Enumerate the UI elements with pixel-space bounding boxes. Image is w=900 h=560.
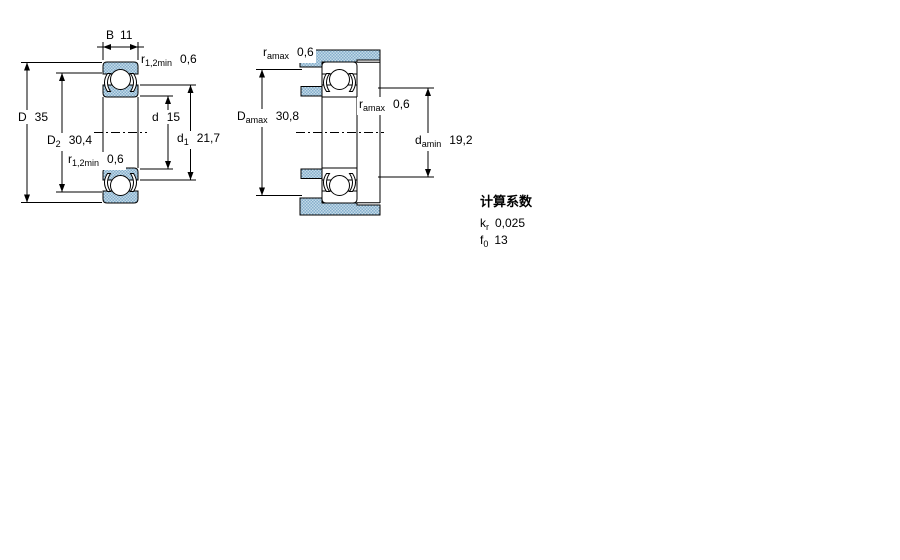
- value: 0,6: [393, 97, 410, 111]
- subscript: amax: [363, 103, 385, 113]
- symbol: d: [415, 133, 422, 147]
- subscript: amax: [267, 51, 289, 61]
- right-mounting-view: [256, 50, 434, 215]
- factor-row-kr: kr0,025: [480, 216, 525, 234]
- symbol: D: [18, 110, 27, 124]
- dim-label-shaft-abutment-diameter: damin19,2: [413, 133, 475, 151]
- value: 15: [167, 110, 180, 124]
- value: 0,6: [297, 45, 314, 59]
- ball-top: [111, 70, 131, 90]
- subscript: 1,2min: [145, 58, 172, 68]
- dimension-housing-abutment-Damax: [256, 70, 302, 196]
- dimension-width-B: [97, 42, 144, 60]
- value: 30,8: [276, 109, 299, 123]
- ball-bottom: [111, 176, 131, 196]
- symbol: d: [177, 131, 184, 145]
- bearing-bottom-section: [322, 168, 357, 203]
- value: 0,6: [180, 52, 197, 66]
- ball-top: [330, 70, 350, 90]
- subscript: amax: [246, 115, 268, 125]
- symbol: D: [237, 109, 246, 123]
- value: 0,025: [495, 216, 525, 230]
- value: 30,4: [69, 133, 92, 147]
- dim-label-shaft-fillet: ramax0,6: [357, 97, 412, 115]
- dim-label-outer-diameter: D35: [16, 110, 50, 124]
- symbol: B: [106, 28, 114, 42]
- subscript: 0: [483, 239, 488, 249]
- value: 35: [35, 110, 48, 124]
- value: 13: [494, 233, 507, 247]
- dim-label-chamfer-top: r1,2min0,6: [141, 52, 197, 70]
- subscript: 2: [56, 139, 61, 149]
- technical-drawing-svg: [0, 0, 900, 560]
- dim-label-chamfer-mid: r1,2min0,6: [66, 152, 126, 170]
- ball-bottom: [330, 176, 350, 196]
- dim-label-housing-fillet-top: ramax0,6: [261, 45, 316, 63]
- value: 11: [120, 28, 132, 42]
- value: 0,6: [107, 152, 124, 166]
- factor-row-f0: f013: [480, 233, 508, 251]
- dim-label-housing-abutment-diameter: Damax30,8: [235, 109, 301, 127]
- subscript: 1: [184, 137, 189, 147]
- bearing-dimension-drawing: B11 r1,2min0,6 D35 D230,4 r1,2min0,6 d15…: [0, 0, 900, 560]
- value: 19,2: [449, 133, 472, 147]
- bearing-top-section: [322, 62, 357, 97]
- shaft-shoulder-bottom: [301, 169, 322, 179]
- calculation-factors-title: 计算系数: [480, 194, 532, 209]
- value: 21,7: [197, 131, 220, 145]
- symbol: d: [152, 110, 159, 124]
- dim-label-bore-diameter: d15: [150, 110, 182, 124]
- dim-label-shoulder-diameter: d121,7: [175, 131, 222, 149]
- symbol: D: [47, 133, 56, 147]
- subscript: r: [486, 222, 489, 232]
- dim-label-width: B11: [106, 28, 132, 42]
- dim-label-shield-diameter: D230,4: [45, 133, 94, 151]
- subscript: amin: [422, 139, 442, 149]
- shaft-shoulder-top: [301, 87, 322, 97]
- subscript: 1,2min: [72, 158, 99, 168]
- dimension-bore-diameter-d: [140, 96, 173, 169]
